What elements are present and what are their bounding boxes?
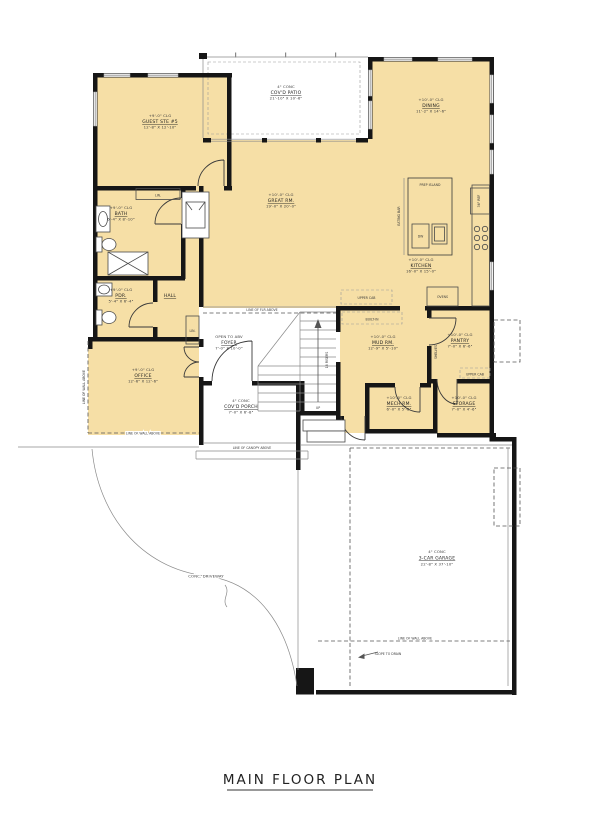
guest-dims-label: 12'-8" X 12'-10" xyxy=(144,125,177,130)
driveway-label: CONC. DRIVEWAY xyxy=(188,574,224,579)
office-dims-label: 12'-6" X 12'-6" xyxy=(128,379,158,384)
plan-title-text: MAIN FLOOR PLAN xyxy=(223,772,377,788)
dining-dims-label: 11'-2" X 14'-6" xyxy=(416,109,446,114)
mud-ceiling-label: +10'-0" CLG xyxy=(370,334,395,339)
foyer-linen-label: LIN. xyxy=(189,329,195,333)
hall-name-label: HALL xyxy=(164,293,177,299)
dw-label: DW xyxy=(418,235,424,239)
office-ceiling-label: +9'-0" CLG xyxy=(132,367,155,372)
eating-bar-label: EATING BAR xyxy=(397,206,401,226)
mud-dims-label: 12'-9" X 5'-10" xyxy=(368,346,398,351)
mud-pantry-mech-storage-area xyxy=(340,308,492,433)
porch-ceiling-label: 4" CONC xyxy=(232,398,250,403)
patio-dims-label: 21'-10" X 10'-6" xyxy=(270,96,303,101)
storage-dims-label: 7'-0" X 4'-6" xyxy=(452,407,477,412)
great-dims-label: 19'-0" X 20'-0" xyxy=(266,204,296,209)
garage-step xyxy=(307,431,345,442)
pdr-toilet xyxy=(96,310,102,325)
bath-ceiling-label: +9'-0" CLG xyxy=(110,205,133,210)
garage-step xyxy=(303,420,345,431)
floor-plan-sheet: 4" CONC COV'D PATIO 21'-10" X 10'-6" +10… xyxy=(0,0,600,834)
risers-label: 18 RISERS xyxy=(325,352,329,369)
great-ceiling-label: +10'-0" CLG xyxy=(268,192,293,197)
garage-wall-above-label: LINE OF WALL ABOVE xyxy=(398,637,432,641)
bath-toilet xyxy=(96,237,102,252)
ref-label: 36" REF xyxy=(477,195,481,208)
kitchen-island xyxy=(408,178,452,255)
garage-ceiling-label: 4" CONC xyxy=(428,549,446,554)
foyer-dims-label: 7'-0" X 10'-0" xyxy=(215,346,243,351)
plan-title: MAIN FLOOR PLAN xyxy=(223,772,377,790)
dining-ceiling-label: +10'-0" CLG xyxy=(418,97,443,102)
slope-to-drain-label: SLOPE TO DRAIN xyxy=(375,652,402,656)
pdr-ceiling-label: +9'-0" CLG xyxy=(110,287,133,292)
pantry-dims-label: 7'-0" X 6'-6" xyxy=(448,344,473,349)
driveway xyxy=(18,447,297,686)
built-in-label: BUILT-IN xyxy=(366,318,380,322)
kitchen-dims-label: 16'-0" X 15'-0" xyxy=(406,269,436,274)
guest-ceiling-label: +9'-0" CLG xyxy=(149,113,172,118)
storage-upper-cab-label: UPPER CAB xyxy=(466,373,484,377)
mech-ceiling-label: +10'-0" CLG xyxy=(386,395,411,400)
office-area xyxy=(88,339,199,435)
bath-dims-label: 6'-4" X 8'-10" xyxy=(107,217,135,222)
canopy-above-label: LINE OF CANOPY ABOVE xyxy=(233,446,272,450)
patio-ceiling-label: 4" CONC xyxy=(277,84,295,89)
kitchen-ceiling-label: +10'-0" CLG xyxy=(408,257,433,262)
fireplace xyxy=(182,192,209,238)
office-wall-above-left-label: LINE OF WALL ABOVE xyxy=(82,370,86,404)
storage-ceiling-label: +10'-0" CLG xyxy=(451,395,476,400)
pdr-dims-label: 5'-4" X 6'-4" xyxy=(109,299,134,304)
office-wall-above-label: LINE OF WALL ABOVE xyxy=(126,432,160,436)
ovens-label: OVENS xyxy=(437,295,448,299)
up-label: UP xyxy=(316,406,320,410)
shelves-label: SHELVES xyxy=(434,345,438,359)
line-flr-above-label: LINE OF FLR ABOVE xyxy=(246,308,277,312)
prep-island-label: PREP ISLAND xyxy=(420,183,441,187)
canopy-above-right xyxy=(494,320,520,362)
pantry-ceiling-label: +10'-0" CLG xyxy=(447,332,472,337)
foyer-ceiling-label: OPEN TO ABV xyxy=(215,334,243,339)
porch-dims-label: 7'-0" X 6'-8" xyxy=(229,410,254,415)
mech-dims-label: 6'-0" X 5'-8" xyxy=(387,407,412,412)
linen-label: LIN. xyxy=(155,194,161,198)
garage-dims-label: 22'-8" X 37'-10" xyxy=(421,562,454,567)
upper-cab-label: UPPER CAB xyxy=(357,296,375,300)
floor-plan-drawing: 4" CONC COV'D PATIO 21'-10" X 10'-6" +10… xyxy=(0,0,600,834)
